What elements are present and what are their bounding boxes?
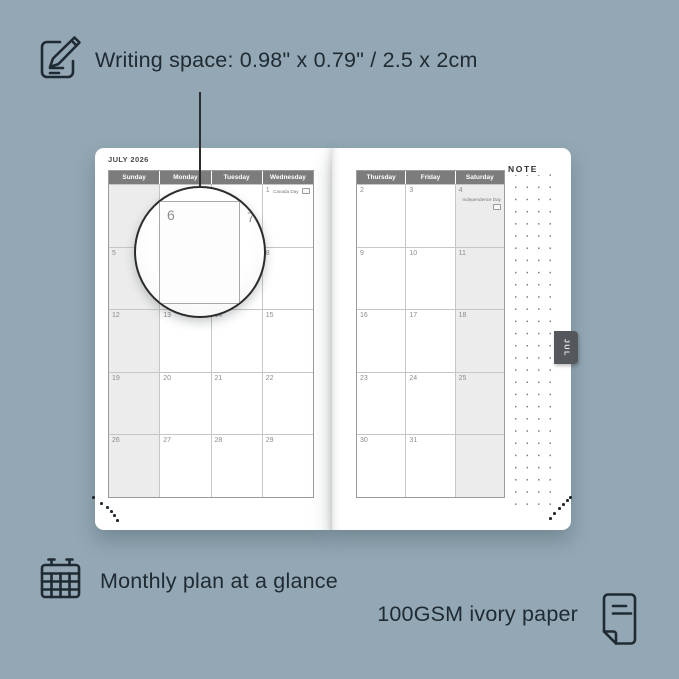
calendar-cell: 25 bbox=[456, 372, 504, 435]
stitch-dot bbox=[566, 499, 569, 502]
calendar-cell: 14 bbox=[212, 309, 263, 372]
date-label: 24 bbox=[409, 375, 417, 383]
stitch-dot bbox=[562, 503, 565, 506]
monthly-plan-label: Monthly plan at a glance bbox=[100, 569, 338, 594]
edit-note-icon bbox=[36, 34, 82, 87]
calendar-cell: 4Independence Day bbox=[456, 184, 504, 247]
calendar-cell: 11 bbox=[456, 247, 504, 310]
calendar-week-row: 232425 bbox=[357, 372, 504, 435]
date-label: 13 bbox=[163, 312, 171, 320]
calendar-cell: 3 bbox=[406, 184, 455, 247]
date-label: 27 bbox=[163, 437, 171, 445]
calendar-cell: 8 bbox=[263, 247, 313, 310]
holiday-label: Canada Day bbox=[273, 187, 299, 195]
paper-label: 100GSM ivory paper bbox=[300, 602, 578, 627]
stitch-dot bbox=[569, 496, 572, 499]
calendar-cell: 19 bbox=[109, 372, 160, 435]
calendar-cell: 31 bbox=[406, 434, 455, 497]
stitch-dot bbox=[553, 512, 556, 515]
calendar-cell: 23 bbox=[357, 372, 406, 435]
day-header: Sunday bbox=[109, 171, 160, 184]
calendar-cell: 22 bbox=[263, 372, 313, 435]
calendar-cell bbox=[456, 434, 504, 497]
day-header: Thursday bbox=[357, 171, 406, 184]
date-label: 18 bbox=[459, 312, 467, 320]
date-label: 15 bbox=[266, 312, 274, 320]
calendar-cell: 28 bbox=[212, 434, 263, 497]
calendar-week-row: 12131415 bbox=[109, 309, 313, 372]
date-label: 23 bbox=[360, 375, 368, 383]
calendar-cell: 10 bbox=[406, 247, 455, 310]
calendar-cell: 17 bbox=[406, 309, 455, 372]
day-header: Tuesday bbox=[212, 171, 263, 184]
calendar-cell: 12 bbox=[109, 309, 160, 372]
day-header: Wednesday bbox=[263, 171, 313, 184]
date-label: 16 bbox=[360, 312, 368, 320]
stitch-dot bbox=[558, 507, 561, 510]
stitch-dot bbox=[549, 517, 552, 520]
date-label: 29 bbox=[266, 437, 274, 445]
calendar-cell: 2 bbox=[357, 184, 406, 247]
calendar-week-row: 234Independence Day bbox=[357, 184, 504, 247]
calendar-cell: 26 bbox=[109, 434, 160, 497]
magnifier-circle: 6 7 bbox=[134, 186, 266, 318]
calendar-cell: 20 bbox=[160, 372, 211, 435]
date-label: 20 bbox=[163, 375, 171, 383]
date-label: 19 bbox=[112, 375, 120, 383]
stitch-dot bbox=[92, 496, 95, 499]
calendar-week-row: 19202122 bbox=[109, 372, 313, 435]
calendar-grid-right: ThursdayFridaySaturday234Independence Da… bbox=[356, 170, 505, 498]
stitch-dot bbox=[110, 510, 113, 513]
date-label: 8 bbox=[266, 250, 270, 258]
date-label: 10 bbox=[409, 250, 417, 258]
calendar-cell: 1Canada Day bbox=[263, 184, 313, 247]
date-label: 25 bbox=[459, 375, 467, 383]
monthly-plan-annotation: Monthly plan at a glance bbox=[37, 556, 338, 607]
date-label: 2 bbox=[360, 187, 364, 195]
date-label: 28 bbox=[215, 437, 223, 445]
month-title: JULY 2026 bbox=[108, 155, 149, 164]
magnified-next-date: 7 bbox=[247, 209, 255, 225]
date-label: 26 bbox=[112, 437, 120, 445]
date-label: 1 bbox=[266, 187, 270, 195]
calendar-cell: 27 bbox=[160, 434, 211, 497]
calendar-week-row: 161718 bbox=[357, 309, 504, 372]
date-label: 30 bbox=[360, 437, 368, 445]
day-header: Saturday bbox=[456, 171, 504, 184]
calendar-cell: 18 bbox=[456, 309, 504, 372]
date-label: 21 bbox=[215, 375, 223, 383]
calendar-cell: 30 bbox=[357, 434, 406, 497]
calendar-cell: 24 bbox=[406, 372, 455, 435]
magnified-date: 6 bbox=[167, 207, 175, 223]
calendar-week-row: 3031 bbox=[357, 434, 504, 497]
note-label: NOTE bbox=[506, 164, 542, 175]
paper-icon bbox=[599, 592, 639, 651]
calendar-week-row: 26272829 bbox=[109, 434, 313, 497]
note-dot-grid: NOTE bbox=[508, 165, 560, 506]
holiday-label: Independence Day bbox=[462, 195, 501, 203]
month-tab-jul: JUL bbox=[554, 331, 578, 364]
date-label: 3 bbox=[409, 187, 413, 195]
stitch-dot bbox=[100, 502, 103, 505]
month-tab-label: JUL bbox=[563, 339, 570, 357]
date-label: 31 bbox=[409, 437, 417, 445]
stitch-dot bbox=[113, 514, 116, 517]
calendar-cell: 13 bbox=[160, 309, 211, 372]
calendar-cell: 9 bbox=[357, 247, 406, 310]
stitch-dot bbox=[116, 519, 119, 522]
calendar-icon bbox=[37, 556, 83, 607]
calendar-cell: 15 bbox=[263, 309, 313, 372]
day-header: Monday bbox=[160, 171, 211, 184]
date-label: 22 bbox=[266, 375, 274, 383]
date-label: 12 bbox=[112, 312, 120, 320]
calendar-cell: 29 bbox=[263, 434, 313, 497]
calendar-cell: 16 bbox=[357, 309, 406, 372]
holiday-icon bbox=[302, 188, 310, 194]
calendar-cell: 21 bbox=[212, 372, 263, 435]
writing-space-label: Writing space: 0.98" x 0.79" / 2.5 x 2cm bbox=[95, 48, 478, 73]
date-label: 11 bbox=[459, 250, 466, 258]
stitch-dot bbox=[106, 506, 109, 509]
date-label: 17 bbox=[409, 312, 417, 320]
writing-space-annotation: Writing space: 0.98" x 0.79" / 2.5 x 2cm bbox=[36, 34, 478, 87]
callout-line bbox=[199, 92, 201, 188]
date-label: 4 bbox=[459, 187, 463, 195]
day-header: Friday bbox=[406, 171, 455, 184]
calendar-week-row: 91011 bbox=[357, 247, 504, 310]
date-label: 9 bbox=[360, 250, 364, 258]
holiday-icon bbox=[493, 204, 501, 210]
date-label: 5 bbox=[112, 250, 116, 258]
